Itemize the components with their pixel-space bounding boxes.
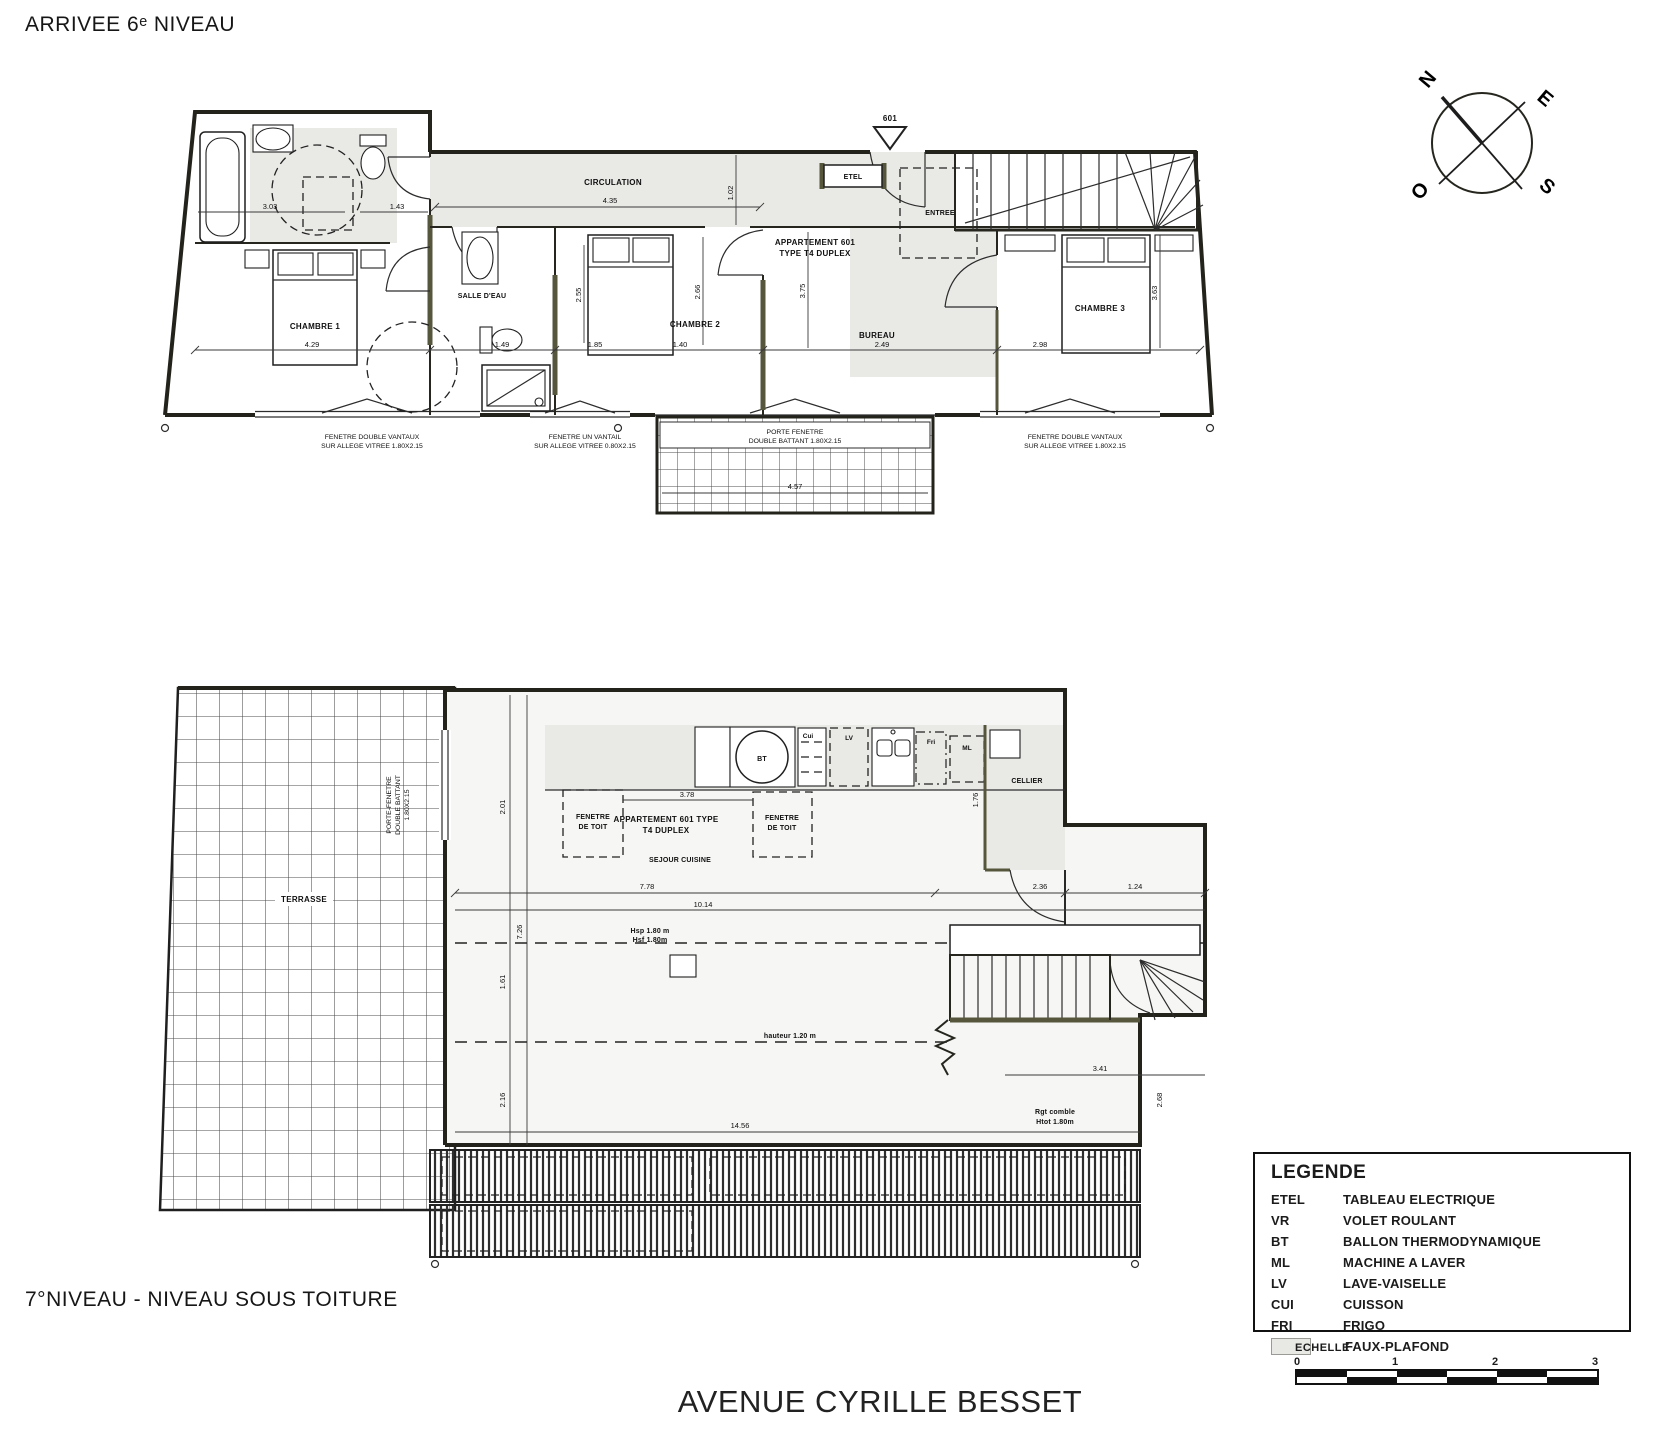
- fenetre-toit1-line2: DE TOIT: [579, 824, 608, 831]
- dim: 3.03: [263, 202, 278, 211]
- legend-abbr: LV: [1271, 1276, 1343, 1291]
- svg-text:DOUBLE BATTANT: DOUBLE BATTANT: [395, 775, 402, 835]
- scale-tick: 1: [1392, 1356, 1398, 1368]
- dim: 1.61: [498, 975, 507, 990]
- lower-apartment-label-line2: T4 DUPLEX: [643, 826, 690, 835]
- dim: 2.16: [498, 1093, 507, 1108]
- legend-box: LEGENDE ETELTABLEAU ELECTRIQUE VRVOLET R…: [1253, 1152, 1631, 1332]
- scale-bar-graphic: [1295, 1369, 1599, 1385]
- dim: 3.63: [1150, 286, 1159, 301]
- dim: 3.75: [798, 284, 807, 299]
- bt-label: BT: [757, 756, 767, 763]
- scale-tick: 0: [1294, 1356, 1300, 1368]
- legend-abbr: ETEL: [1271, 1192, 1343, 1207]
- dim: 7.26: [515, 925, 524, 940]
- svg-text:PORTE-FENETRE: PORTE-FENETRE: [386, 776, 393, 834]
- terrasse-label: TERRASSE: [281, 895, 327, 904]
- upper-plan-title: ARRIVEE 6ᵉ NIVEAU: [25, 13, 235, 37]
- fenetre-toit2-line2: DE TOIT: [768, 825, 797, 832]
- legend-label: BALLON THERMODYNAMIQUE: [1343, 1234, 1541, 1249]
- fri-label: Fri: [927, 739, 936, 746]
- entry-arrow: 601: [874, 114, 906, 149]
- legend-row: LVLAVE-VAISELLE: [1271, 1273, 1629, 1294]
- hauteur-label: hauteur 1.20 m: [764, 1033, 816, 1040]
- lower-apartment-label-line1: APPARTEMENT 601 TYPE: [614, 815, 719, 824]
- scale-ticks: 0 1 2 3: [1295, 1356, 1597, 1369]
- circulation-label: CIRCULATION: [584, 178, 642, 187]
- balcony-door-note-line1: PORTE FENETRE: [767, 429, 824, 436]
- chambre1-furniture: [245, 250, 457, 412]
- etel-label: ETEL: [844, 174, 863, 181]
- dim: 1.02: [726, 186, 735, 201]
- apartment-type-label-line1: APPARTEMENT 601: [775, 238, 856, 247]
- compass-south-label: S: [1535, 174, 1559, 199]
- apartment-type-label-line2: TYPE T4 DUPLEX: [779, 249, 851, 258]
- legend-label: CUISSON: [1343, 1297, 1404, 1312]
- dim: 7.78: [640, 882, 655, 891]
- dim: 14.56: [731, 1121, 750, 1130]
- window-note-mid-line1: FENETRE UN VANTAIL: [549, 434, 622, 441]
- dim: 1.49: [495, 340, 510, 349]
- entree-label: ENTREE: [925, 210, 955, 217]
- legend-row: FRIFRIGO: [1271, 1315, 1629, 1336]
- window-note-mid-line2: SUR ALLEGE VITREE 0.80X2.15: [534, 443, 636, 450]
- cellier-label: CELLIER: [1011, 778, 1042, 785]
- salle-deau-fixtures: [462, 232, 550, 411]
- legend-label: FRIGO: [1343, 1318, 1385, 1333]
- balcony: PORTE FENETRE DOUBLE BATTANT 1.80X2.15 4…: [657, 417, 933, 513]
- window-note-left-line1: FENETRE DOUBLE VANTAUX: [325, 434, 420, 441]
- sejour-label: SEJOUR CUISINE: [649, 857, 711, 864]
- upper-floor-plan-drawing: PORTE FENETRE DOUBLE BATTANT 1.80X2.15 4…: [150, 95, 1220, 535]
- dim: 2.98: [1033, 340, 1048, 349]
- fenetre-toit1-line1: FENETRE: [576, 814, 610, 821]
- legend-abbr: CUI: [1271, 1297, 1343, 1312]
- dim: 2.01: [498, 800, 507, 815]
- compass-north-label: N: [1415, 67, 1441, 92]
- compass-west-label: O: [1407, 178, 1434, 204]
- dim: 2.49: [875, 340, 890, 349]
- bureau-label: BUREAU: [859, 331, 895, 340]
- hsp-line1: Hsp 1.80 m: [631, 928, 670, 935]
- dim: 1.85: [588, 340, 603, 349]
- etel-panel: ETEL: [822, 163, 884, 189]
- scale-bar: ECHELLE 0 1 2 3: [1295, 1342, 1615, 1385]
- salle-deau-label: SALLE D'EAU: [458, 293, 507, 300]
- balcony-door-note-line2: DOUBLE BATTANT 1.80X2.15: [749, 438, 842, 445]
- dim: 1.24: [1128, 882, 1143, 891]
- window-note-right-line1: FENETRE DOUBLE VANTAUX: [1028, 434, 1123, 441]
- legend-row: VRVOLET ROULANT: [1271, 1210, 1629, 1231]
- floor-plan-sheet: ARRIVEE 6ᵉ NIVEAU 7°NIVEAU - NIVEAU SOUS…: [0, 0, 1654, 1440]
- dim: 1.76: [971, 793, 980, 808]
- cui-label: Cui: [803, 733, 814, 740]
- legend-title: LEGENDE: [1271, 1162, 1629, 1184]
- legend-label: TABLEAU ELECTRIQUE: [1343, 1192, 1495, 1207]
- dim: 4.35: [603, 196, 618, 205]
- street-name: AVENUE CYRILLE BESSET: [640, 1384, 1120, 1420]
- dim: 2.66: [693, 285, 702, 300]
- dim: 1.40: [673, 340, 688, 349]
- window-note-right-line2: SUR ALLEGE VITREE 1.80X2.15: [1024, 443, 1126, 450]
- roof-hatch: [430, 1150, 1140, 1268]
- ml-label: ML: [962, 745, 971, 752]
- chambre2-label: CHAMBRE 2: [670, 320, 721, 329]
- legend-row: CUICUISSON: [1271, 1294, 1629, 1315]
- rgt-comble-line1: Rgt comble: [1035, 1109, 1075, 1116]
- fenetre-toit2-line1: FENETRE: [765, 815, 799, 822]
- dim: 2.55: [574, 288, 583, 303]
- dim: 4.29: [305, 340, 320, 349]
- hsp-line2: Hsf 1.80m: [633, 937, 668, 944]
- legend-abbr: ML: [1271, 1255, 1343, 1270]
- dim: 3.78: [680, 790, 695, 799]
- rgt-comble-line2: Htot 1.80m: [1036, 1119, 1074, 1126]
- terrace-door-opening: [439, 730, 451, 840]
- legend-label: VOLET ROULANT: [1343, 1213, 1456, 1228]
- scale-label: ECHELLE: [1295, 1342, 1615, 1354]
- dim-balcony-width: 4.57: [788, 482, 803, 491]
- legend-label: LAVE-VAISELLE: [1343, 1276, 1446, 1291]
- window-note-left-line2: SUR ALLEGE VITREE 1.80X2.15: [321, 443, 423, 450]
- scale-tick: 3: [1592, 1356, 1598, 1368]
- apartment-number-tag: 601: [883, 114, 897, 123]
- scale-tick: 2: [1492, 1356, 1498, 1368]
- chambre2-furniture: [588, 235, 673, 355]
- legend-row: ETELTABLEAU ELECTRIQUE: [1271, 1189, 1629, 1210]
- dim: 10.14: [694, 900, 713, 909]
- lv-label: LV: [845, 735, 853, 742]
- terrace: TERRASSE: [160, 688, 455, 1210]
- legend-abbr: VR: [1271, 1213, 1343, 1228]
- dim: 2.36: [1033, 882, 1048, 891]
- chambre1-label: CHAMBRE 1: [290, 322, 341, 331]
- compass-rose-icon: N E O S: [1390, 45, 1580, 215]
- dim: 2.68: [1155, 1093, 1164, 1108]
- legend-abbr: BT: [1271, 1234, 1343, 1249]
- dim: 3.41: [1093, 1064, 1108, 1073]
- svg-text:1.80X2.15: 1.80X2.15: [404, 789, 411, 820]
- legend-abbr: FRI: [1271, 1318, 1343, 1333]
- compass-graphic: N E O S: [1407, 67, 1559, 204]
- chambre3-furniture: [1005, 235, 1193, 353]
- legend-row: MLMACHINE A LAVER: [1271, 1252, 1629, 1273]
- compass-east-label: E: [1533, 86, 1557, 111]
- chambre3-label: CHAMBRE 3: [1075, 304, 1126, 313]
- dim: 1.43: [390, 202, 405, 211]
- lower-floor-plan-drawing: TERRASSE BT Cui LV: [150, 670, 1220, 1310]
- legend-label: MACHINE A LAVER: [1343, 1255, 1465, 1270]
- legend-row: BTBALLON THERMODYNAMIQUE: [1271, 1231, 1629, 1252]
